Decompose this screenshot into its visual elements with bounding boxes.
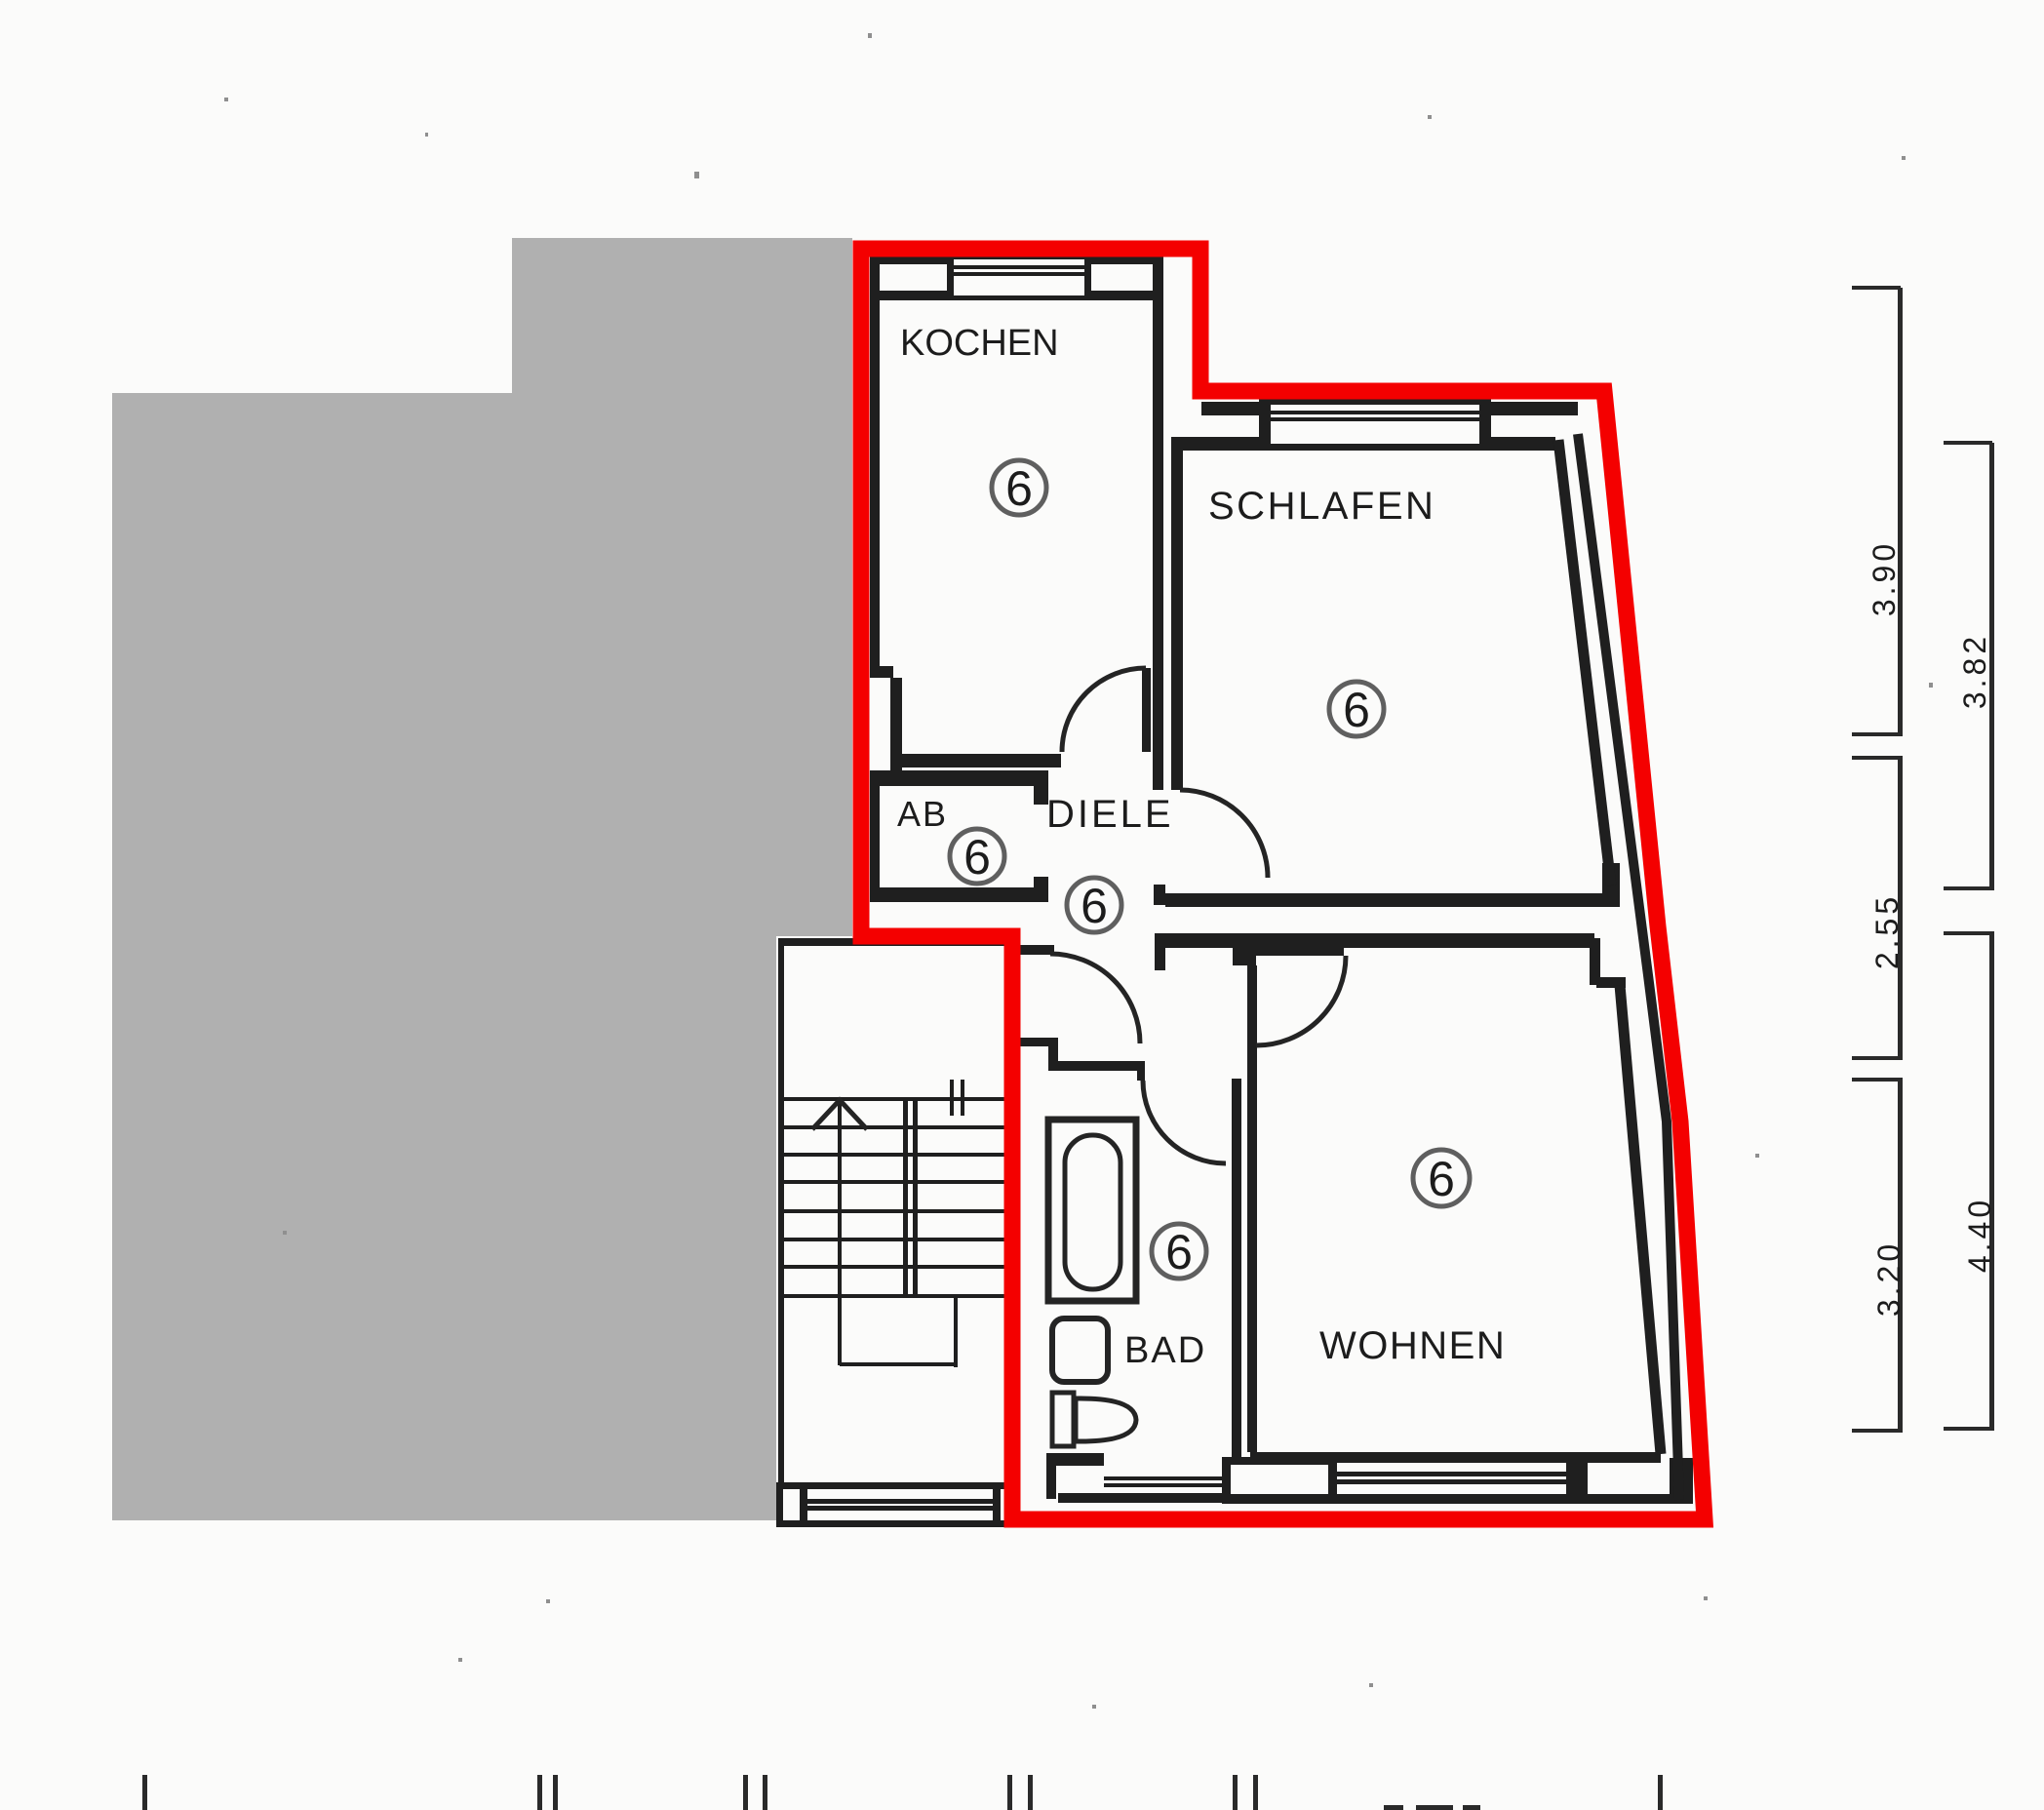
svg-text:3.90: 3.90 bbox=[1867, 540, 1902, 616]
svg-text:4.40: 4.40 bbox=[1962, 1197, 1997, 1273]
svg-text:WOHNEN: WOHNEN bbox=[1319, 1324, 1506, 1367]
svg-text:AB: AB bbox=[897, 794, 948, 834]
svg-text:2.55: 2.55 bbox=[1869, 893, 1905, 969]
svg-text:6: 6 bbox=[1165, 1225, 1193, 1279]
svg-text:DIELE: DIELE bbox=[1046, 793, 1174, 836]
svg-text:6: 6 bbox=[1428, 1152, 1455, 1206]
svg-text:3.20: 3.20 bbox=[1871, 1240, 1906, 1317]
svg-text:6: 6 bbox=[1343, 683, 1370, 737]
svg-text:6: 6 bbox=[1081, 879, 1108, 933]
svg-text:6: 6 bbox=[1005, 461, 1033, 516]
svg-text:BAD: BAD bbox=[1124, 1330, 1206, 1371]
svg-text:6: 6 bbox=[963, 830, 991, 885]
svg-text:3.82: 3.82 bbox=[1957, 633, 1992, 709]
svg-text:SCHLAFEN: SCHLAFEN bbox=[1208, 485, 1435, 528]
svg-text:KOCHEN: KOCHEN bbox=[900, 323, 1059, 364]
